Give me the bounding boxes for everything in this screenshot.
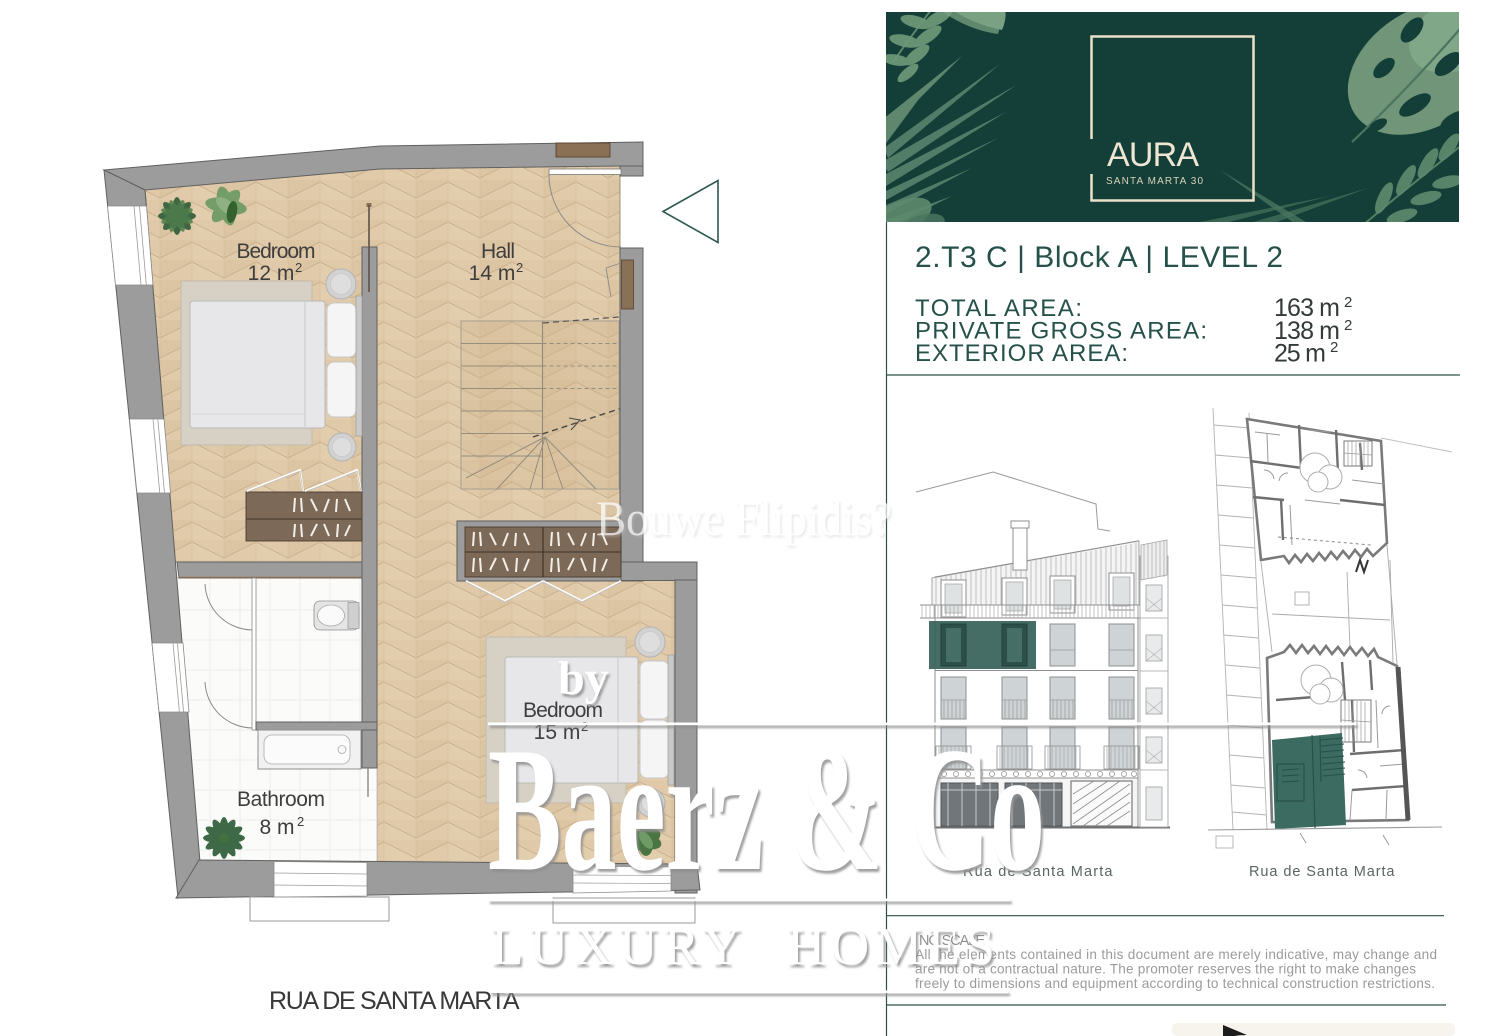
svg-text:2: 2 bbox=[1344, 317, 1352, 334]
svg-text:EXTERIOR AREA:: EXTERIOR AREA: bbox=[915, 340, 1128, 367]
svg-text:freely to dimensions and equip: freely to dimensions and equipment accor… bbox=[915, 976, 1435, 991]
svg-text:LUXURY: LUXURY bbox=[491, 918, 741, 976]
svg-text:2: 2 bbox=[295, 260, 302, 275]
svg-text:RUA DE SANTA MARTA: RUA DE SANTA MARTA bbox=[269, 987, 521, 1015]
svg-text:2: 2 bbox=[1344, 294, 1352, 311]
svg-text:2.T3 C | Block A | LEVEL 2: 2.T3 C | Block A | LEVEL 2 bbox=[915, 241, 1283, 274]
svg-text:AURA: AURA bbox=[1107, 136, 1202, 174]
svg-text:Bathroom: Bathroom bbox=[237, 788, 325, 811]
svg-text:14 m: 14 m bbox=[469, 262, 516, 285]
svg-text:12 m: 12 m bbox=[248, 262, 295, 285]
svg-text:8 m: 8 m bbox=[259, 816, 294, 839]
svg-text:by: by bbox=[558, 652, 609, 705]
svg-text:Rua de Santa Marta: Rua de Santa Marta bbox=[1249, 864, 1395, 880]
svg-text:Bouwe Flipidis?: Bouwe Flipidis? bbox=[596, 490, 892, 546]
svg-text:2: 2 bbox=[1330, 339, 1338, 356]
svg-text:SANTA MARTA 30: SANTA MARTA 30 bbox=[1106, 176, 1205, 187]
svg-text:Baerz & Co: Baerz & Co bbox=[488, 710, 1045, 908]
svg-text:2: 2 bbox=[516, 260, 523, 275]
svg-text:Hall: Hall bbox=[481, 240, 515, 263]
svg-text:25 m: 25 m bbox=[1274, 340, 1326, 368]
svg-text:Bedroom: Bedroom bbox=[237, 240, 316, 263]
svg-text:2: 2 bbox=[297, 814, 304, 829]
